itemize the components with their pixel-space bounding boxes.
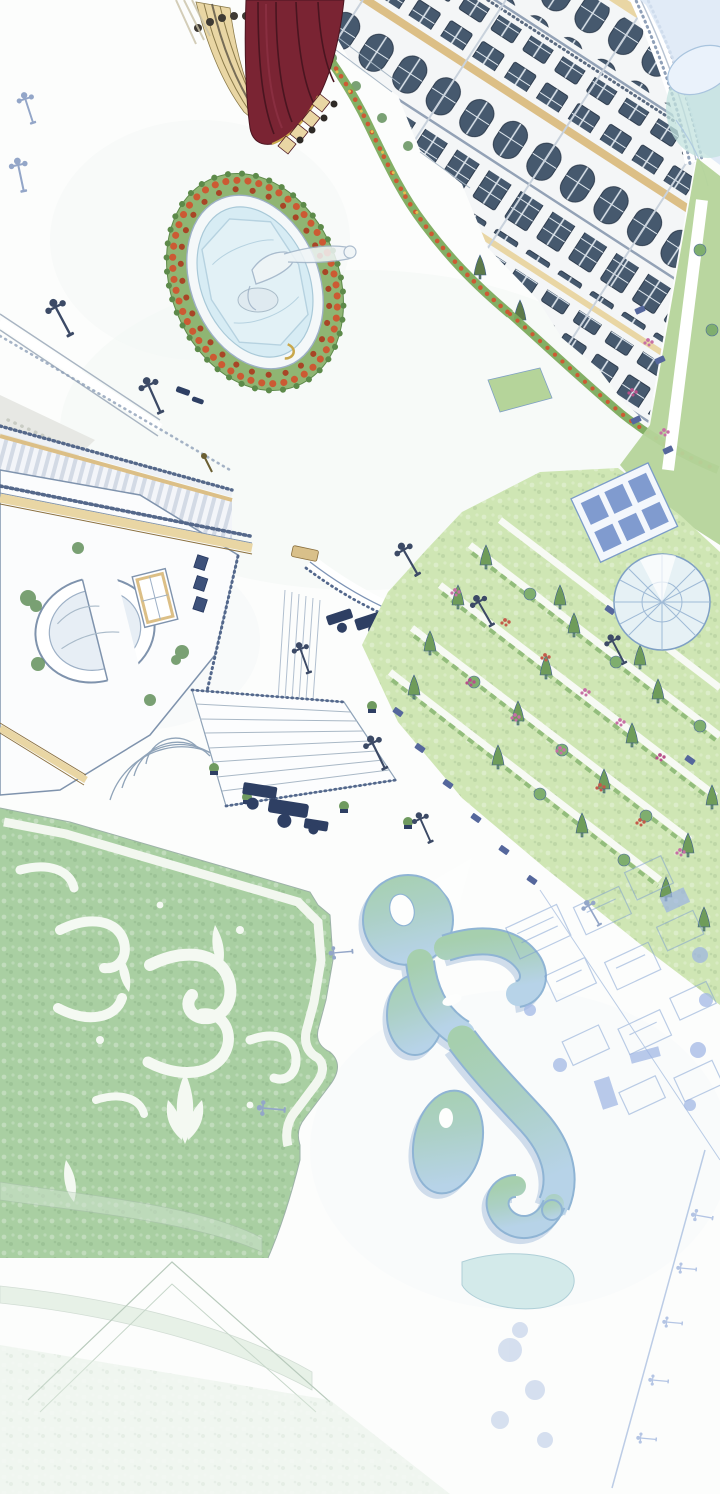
teal-garden-patch — [462, 1254, 574, 1448]
webtoon-panel — [0, 0, 720, 1494]
illustration-canvas — [0, 0, 720, 1494]
faded-garden-blobs — [491, 1322, 553, 1448]
